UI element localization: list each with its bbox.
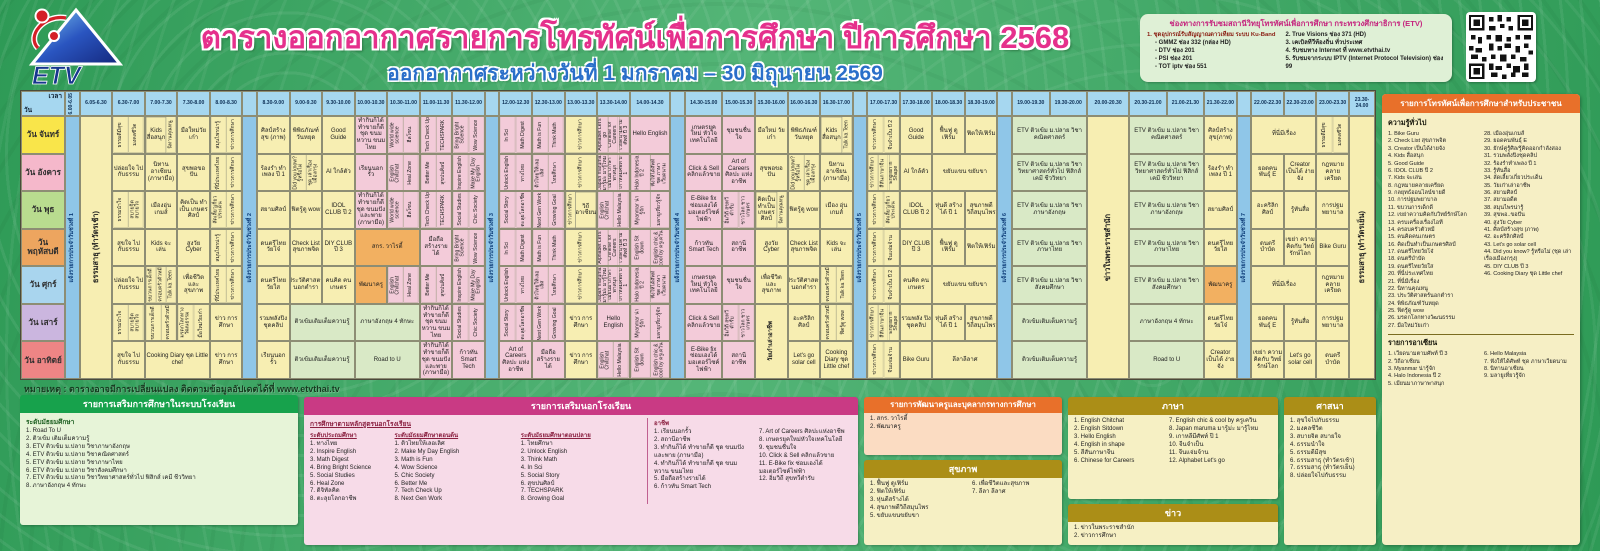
schedule-cell: ฟิตรู้ดู wow: [788, 191, 821, 229]
schedule-cell: หุ่นดี สร้างได้ ปี 1: [932, 191, 965, 229]
list-item: 2. มงคลชีวิต: [1290, 426, 1370, 434]
schedule-subcell: มือใหม่วัยเก๋า: [194, 305, 209, 341]
schedule-subcell: TECHSPARK: [436, 192, 451, 228]
schedule-subcell: สุขปนศิลป์: [436, 267, 451, 303]
schedule-cell: ฟิตให้เฟิร์ม: [965, 116, 998, 154]
schedule-cell: สูงวัย Cyber: [177, 229, 210, 267]
schedule-subcell: ทางไทย: [516, 155, 531, 191]
schedule-cell: Creator เป็นได้ ง่ายจัง: [1204, 341, 1237, 379]
schedule-subcell: Better Me: [421, 155, 436, 191]
time-header-cell: 14.00-14.30: [630, 91, 671, 116]
schedule-cell: มือถือ สร้างรายได้: [532, 341, 565, 379]
schedule-subcell: Better Me: [421, 267, 436, 303]
panel-public: รายการโทรทัศน์เพื่อการศึกษาสำหรับประชาชน…: [1382, 94, 1580, 545]
list-item: 3. Math Digest: [310, 457, 388, 465]
schedule-subcell: Growing Goal: [548, 305, 563, 341]
schedule-cell: เพื่อชีวิต และ สุขภาพ: [755, 266, 788, 304]
schedule-cell: Halo Indonesia ปี 2ฟังให้ได้ศัพท์ ชุด ภา…: [630, 154, 671, 192]
list-item: 1. สกร. วาไรตี้: [870, 416, 1056, 424]
schedule-cell: ประวัติศาสตร์ นอกตำรา: [290, 266, 323, 304]
schedule-subcell: ข่าวการศึกษา: [868, 230, 883, 266]
panel-public-title: รายการโทรทัศน์เพื่อการศึกษาสำหรับประชาชน: [1382, 94, 1580, 113]
schedule-cell: ฟื้นฟู ดูเฟิร์ม: [932, 229, 965, 267]
list-item: 8. ปล่อยใจไปกับธรรม: [1290, 473, 1370, 481]
schedule-subcell: สีสันภาษาจีน: [878, 155, 888, 191]
list-item: 4. รับชมทาง Internet ที่ www.etvthai.tv: [1285, 48, 1445, 56]
teacher-list: 1. สกร. วาไรตี้2. พัฒนาครู: [864, 413, 1062, 455]
schedule-subcell: ฮีลโซน: [403, 192, 418, 228]
daily-announce-band: แจ้งรายการประจำวันช่วงที่ 4: [670, 116, 685, 379]
schedule-cell: ข่าวการศึกษาสีสันภาษาจีนEnglish in Shape: [867, 304, 900, 342]
career-list-2: 7. Art of Careers ศิลปะแห่งอาชีพ8. เกษตร…: [759, 429, 852, 492]
schedule-cell: เมืองอุ่นเกมส์: [145, 191, 178, 229]
schedule-subcell: Chic Society: [469, 305, 484, 341]
schedule-cell: ธรรมนำใจสบายจิต สบายใจ: [112, 304, 145, 342]
schedule-cell: พิพิธภัณฑ์ วันหยุด: [788, 116, 821, 154]
schedule-subcell: Unlock English: [500, 267, 515, 303]
schedule-cell: รู้ทันสื่อ: [1284, 191, 1317, 229]
schedule-cell: สุขภาพดี วิถีสมุนไพร: [965, 304, 998, 342]
career-list-1: 1. เรียนนอกรั้ว2. สถานีอาชีพ3. ทำกินก็ได…: [654, 429, 752, 492]
schedule-subcell: ชุด เล่าเรื่องเมืองกรุง: [804, 155, 819, 191]
schedule-subcell: ฟังให้ได้ศัพท์ ชุด ภาษาเวียดนาม: [650, 155, 669, 191]
schedule-cell: คิดเป็น ทำเป็น เกษตร ศิลป์: [177, 191, 210, 229]
list-item: 8. ภาษาอังกฤษ 4 ทักษะ: [26, 483, 292, 491]
schedule-subcell: ข่าวการศึกษา: [226, 192, 241, 228]
schedule-subcell: Halo Indonesia ปี 2: [631, 267, 650, 303]
panel-health: สุขภาพ 1. ฟื้นฟู ดูเฟิร์ม2. ฟิตให้เฟิร์ม…: [864, 460, 1062, 545]
list-item: 8. Next Gen Work: [395, 496, 514, 504]
time-header-cell: 18.00-18.30: [932, 91, 965, 116]
schedule-cell: ยอดคน พันธุ์ E: [1251, 304, 1284, 342]
schedule-cell: Inspire EnglishMake My Day English: [452, 154, 485, 192]
lower-list: 1. ติวไทยให้เลอเลิศ2. Make My Day Englis…: [395, 441, 514, 504]
list-item: 1. สุขใจไปกับธรรม: [1290, 418, 1370, 426]
time-header-cell: [485, 91, 500, 116]
schedule-cell: ภาษาอังกฤษ 4 ทักษะ: [355, 304, 420, 342]
schedule-cell: ข่าวการศึกษาลัดเลี้ยวเกี่ยวประเด็น: [867, 191, 900, 229]
schedule-cell: ศิลป์สร้าง สุข(ภาพ): [1204, 116, 1237, 154]
list-item: 31. รวมพลังปิงชุดคลิป: [1484, 153, 1574, 160]
schedule-cell: Inspire EnglishMake My Day English: [452, 266, 485, 304]
schedule-subcell: ตะลุยโลกอาชีพ: [516, 192, 531, 228]
schedule-subcell: Inspire English: [453, 155, 468, 191]
list-item: 6. IDOL CLUB ปี 2: [1388, 168, 1480, 175]
schedule-cell: สถานีอาชีพ: [722, 229, 755, 267]
schedule-subcell: วิถี อาเซียน: [575, 192, 596, 228]
schedule-subcell: เวียดนามตามศัพท์ ปี 3: [619, 117, 629, 153]
list-item: 2. วิถีอาเซียน: [1388, 359, 1480, 366]
schedule-cell: Halo Indonesia ปี 2ฟังให้ได้ศัพท์ ชุด ภา…: [630, 266, 671, 304]
list-item: 13. ครบเครื่องเรื่องไอที: [1388, 220, 1480, 227]
schedule-subcell: ติวไทยให้เลอเลิศ: [533, 155, 548, 191]
schedule-subcell: มลายูเที่ยวรู้จัก: [650, 192, 669, 228]
list-item: 9. ชุมชนชื่นใจ: [759, 445, 852, 453]
time-header-cell: 7.00-7.30: [145, 91, 178, 116]
schedule-cell: ดนตรีไทย วัยโจ๋: [257, 229, 290, 267]
schedule-cell: Bring Bright ScienceWow Science: [452, 116, 485, 154]
schedule-cell: ทำกินก็ได้ทำขายก็ดี ชุด ขนมหวาน ขนมไทย: [355, 116, 388, 154]
schedule-subcell: Talk ka Teen: [166, 267, 176, 303]
schedule-subcell: ที่นี่ประเทศไทย: [211, 267, 226, 303]
schedule-cell: การปฐม พยาบาล: [1316, 304, 1349, 342]
list-item: 11. E-Bike fix ซ่อมเองได้ มอเตอร์ไซค์ไฟฟ…: [759, 461, 852, 477]
schedule-cell: English ChitchatHello Malaysia: [597, 191, 630, 229]
schedule-subcell: ข่าวการศึกษา: [868, 342, 883, 378]
time-header-cell: 6.05-6.30: [80, 91, 113, 116]
general-heading: ความรู้ทั่วไป: [1388, 118, 1574, 129]
schedule-subcell: Did you know? รู้หรือไม่: [789, 155, 804, 191]
list-item: 8. เกษตรยุคใหม่หัวใจเทคโนโลยี: [759, 437, 852, 445]
schedule-subcell: ธรรมนำใจ: [113, 192, 128, 228]
schedule-cell: E-Bike fix ซ่อมเองได้ มอเตอร์ไซค์ ไฟฟ้า: [685, 191, 722, 229]
schedule-cell: Math is FunThink Math: [532, 229, 565, 267]
schedule-subcell: English chic & cool by ครูเควิน: [650, 342, 669, 378]
schedule-subcell: Social Studies: [453, 305, 468, 341]
list-item: 7. ฟังให้ได้ศัพท์ ชุด ภาษาเวียดนาม: [1484, 359, 1574, 366]
schedule-cell: เขย่า ความคิดกับ วิทย์รักษ์โลก: [1251, 341, 1284, 379]
upper-heading: ระดับมัธยมศึกษาตอนปลาย: [521, 430, 640, 440]
schedule-cell: Hello English: [630, 116, 671, 154]
schedule-cell: วัยเก๋าเล่าอาชีพ: [755, 304, 788, 379]
list-item: 5. Social Story: [521, 473, 640, 481]
list-item: 12. Alphabet Let's go: [1169, 458, 1272, 466]
viewing-channels-box: ช่องทางการรับชมสถานีวิทยุโทรทัศน์เพื่อกา…: [1140, 14, 1452, 82]
schedule-cell: สกร. วาไรตี้: [355, 229, 420, 267]
schedule-cell: ชุมชนชื่นใจ: [722, 116, 755, 154]
svg-text:ETV: ETV: [32, 62, 83, 86]
list-item: - TOT iptv ช่อง 551: [1155, 64, 1279, 72]
list-item: 18. ดนตรีบำบัด: [1388, 256, 1480, 263]
schedule-cell: ธรรมสาธุ (ทำวัตรเย็น): [1349, 116, 1375, 379]
daily-announce-band: แจ้งรายการประจำวันช่วงที่ 6: [997, 116, 1012, 379]
list-item: 2. สถานีอาชีพ: [654, 437, 752, 445]
time-header-cell: 19.30-20.00: [1050, 91, 1087, 116]
schedule-cell: ยอดคน พันธุ์ E: [1251, 154, 1284, 192]
schedule-cell: In SciMath Digest: [499, 229, 532, 267]
general-list-1: 1. Bike Guru2. Check List สุขภาพจิต3. Cr…: [1388, 131, 1480, 330]
schedule-subcell: ข่าวการศึกษา: [226, 267, 241, 303]
schedule-subcell: สีสันภาษาจีน: [878, 305, 888, 341]
schedule-cell: อะคริลิก ศิลป์: [1251, 191, 1284, 229]
schedule-cell: World wide scienceฮีลโซน: [387, 116, 420, 154]
schedule-subcell: จีนแจ่มจ้าน: [884, 230, 899, 266]
upper-list: 1. ไทยศึกษา2. Unlock English3. Think Mat…: [521, 441, 640, 504]
list-item: 42. อะคริลิกศิลป์: [1484, 234, 1574, 241]
schedule-cell: มือใหม่ วัยเก๋า: [755, 116, 788, 154]
level-heading: ระดับมัธยมศึกษา: [26, 416, 292, 427]
schedule-cell: Social Storyตะลุยโลกอาชีพ: [499, 304, 532, 342]
qr-code: [1466, 12, 1536, 82]
panel-in-school-title: รายการเสริมการศึกษาในระบบโรงเรียน: [20, 395, 298, 413]
schedule-cell: ETV ติวเข้ม ม.ปลาย วิชาสังคมศึกษา: [1129, 266, 1204, 304]
schedule-cell: หุ่นดี สร้างได้ ปี 1: [932, 304, 965, 342]
schedule-subcell: English Chitchat: [388, 155, 403, 191]
list-item: 6. Chinese for Careers: [1074, 458, 1162, 466]
schedule-cell: Alphabet Let's goChinese for Careersเวีย…: [597, 229, 630, 267]
schedule-cell: Unlock Englishทางไทย: [499, 154, 532, 192]
schedule-subcell: เกาหลีมีศัพท์ ปี 1: [619, 267, 629, 303]
panel-religion-title: ศาสนา: [1284, 397, 1376, 415]
list-item: 15. คนคิดคนเกษตร: [1388, 234, 1480, 241]
schedule-cell: รวมพลังปิง ชุดคลิป: [257, 304, 290, 342]
schedule-cell: ที่นี่มีเรื่อง: [1251, 266, 1316, 304]
schedule-cell: Let's go solar cell: [788, 341, 821, 379]
list-item: 2. Inspire English: [310, 449, 388, 457]
schedule-subcell: เมียนมาภาษาพาสนุก: [608, 267, 618, 303]
schedule-subcell: Kids สื่อสนุก: [146, 117, 167, 153]
schedule-cell: ดนตรีไทย วัยใส: [1204, 229, 1237, 267]
schedule-cell: ข่าวการศึกษาจีนจำเป็น ปี 2: [867, 266, 900, 304]
schedule-cell: ทำกินก็ได้ ทำขายก็ดี ชุด ขนมปังและพาย (ภ…: [420, 341, 453, 379]
list-item: - GMMZ ช่อง 332 (กล่อง HD): [1155, 40, 1279, 48]
schedule-subcell: ข่าวการศึกษา: [566, 155, 597, 191]
list-item: 5. Social Studies: [310, 473, 388, 481]
schedule-cell: ดนตรีไทย วัยโจ๋: [1204, 304, 1237, 342]
schedule-cell: English ChitchatHello Malaysia: [597, 341, 630, 379]
list-item: 6. สุขปนศิลป์: [521, 481, 640, 489]
list-item: 1. Road To U: [26, 428, 292, 436]
schedule-cell: สมุนไพรน่ารู้ข่าวการศึกษา: [210, 116, 243, 154]
schedule-subcell: Next Gen Work: [533, 305, 548, 341]
schedule-cell: AI ใกล้ตัว: [322, 154, 355, 192]
schedule-cell: ศิลป์สร้างสุข (ภาพ): [257, 116, 290, 154]
schedule-cell: Myanmar น่ารู้จักมลายูเที่ยวรู้จัก: [630, 191, 671, 229]
schedule-subcell: ข่าวการศึกษา: [868, 267, 883, 303]
list-item: 2. English Sitdown: [1074, 426, 1162, 434]
schedule-cell: สุขพอขอปัน: [177, 154, 210, 192]
schedule-cell: ลัดเลี้ยวเกี่ยวประเด็นข่าวการศึกษา: [210, 191, 243, 229]
schedule-subcell: สมุนไพรน่ารู้: [211, 117, 226, 153]
day-label: วัน อาทิตย์: [21, 341, 65, 379]
list-item: 6. ก้าวทัน Smart Tech: [654, 484, 752, 492]
list-item: 5. Chic Society: [395, 473, 514, 481]
schedule-subcell: Heal Zone: [403, 267, 418, 303]
list-item: 8. Japan maruma มารู้ม่ะ มารู้ไหม: [1169, 426, 1272, 434]
daily-announce-band: แจ้งรายการประจำวันช่วงที่ 7: [1237, 116, 1252, 379]
list-item: 5. เมียนมาภาษาพาสนุก: [1388, 381, 1480, 388]
schedule-subcell: ข่าวการศึกษา: [566, 230, 597, 266]
schedule-cell: ติวเข้มเติมเต็มความรู้: [290, 304, 355, 342]
schedule-cell: ฟื้นฟู ดูเฟิร์ม: [932, 116, 965, 154]
schedule-cell: อิ่มวิถี สุขทวีตำรับชาวโลก ชาวเกษตร: [722, 304, 755, 342]
time-header-cell: [997, 91, 1012, 116]
schedule-grid: เวลาวัน6.00-6.05แจ้งรายการประจำวันช่วงที…: [20, 90, 1376, 380]
schedule-subcell: ข่าวการศึกษา: [226, 155, 241, 191]
schedule-cell: English ChitchatHeal Zone: [387, 154, 420, 192]
schedule-cell: ติวเข้มเติมเต็มความรู้: [1012, 304, 1087, 342]
schedule-subcell: ธรรมดีมีสุข: [1317, 117, 1332, 153]
panel-teacher: รายการพัฒนาครูและบุคลากรทางการศึกษา 1. ส…: [864, 397, 1062, 455]
schedule-cell: ขยับแขน ขยับขา: [932, 266, 997, 304]
schedule-subcell: ที่นี่ประเทศไทย: [211, 155, 226, 191]
schedule-cell: มรดกโลกทางวัฒนธรรมมือใหม่วัยเก๋า: [177, 304, 210, 342]
schedule-cell: สุขใจ ไปกับธรรม: [112, 341, 145, 379]
daily-announce-band: แจ้งรายการประจำวันช่วงที่ 3: [485, 116, 500, 379]
schedule-cell: Good Guide: [900, 116, 933, 154]
list-item: 37. สยามอดีต: [1484, 197, 1574, 204]
schedule-cell: DIY CLUB ปี 3: [900, 229, 933, 267]
list-item: 11. จีนแจ่มจ้าน: [1169, 450, 1272, 458]
schedule-subcell: ขบวนการเด็กดี: [146, 305, 161, 341]
time-header-cell: 23.30-24.00: [1349, 91, 1375, 116]
panel-language-title: ภาษา: [1068, 397, 1278, 415]
schedule-cell: ข่าวการศึกษา: [565, 266, 598, 304]
schedule-subcell: Japan maruma มารู้ม่ะ มารู้ไหม: [598, 267, 608, 303]
schedule-subcell: Japan maruma มารู้ม่ะ มารู้ไหม: [598, 155, 608, 191]
list-item: 2. True Visions ช่อง 371 (HD): [1285, 32, 1445, 40]
schedule-subcell: Did you know? รู้หรือไม่: [291, 155, 306, 191]
time-header-cell: 20.00-20.30: [1087, 91, 1129, 116]
schedule-subcell: สุขปนศิลป์: [436, 155, 451, 191]
schedule-subcell: English chic & cool by ครูเควิน: [650, 230, 669, 266]
list-item: 3. Hello English: [1074, 434, 1162, 442]
time-header-cell: [242, 91, 257, 116]
list-item: 7. Tech Check Up: [395, 488, 514, 496]
schedule-cell: มือใหม่วัยเก๋า: [177, 116, 210, 154]
schedule-subcell: Make My Day English: [469, 267, 484, 303]
schedule-cell: E-Bike fix ซ่อมเองได้ มอเตอร์ไซค์ ไฟฟ้า: [685, 341, 722, 379]
schedule-cell: คนคิด คนเกษตร: [900, 266, 933, 304]
schedule-subcell: ครอบครัวตัวหมี: [156, 267, 166, 303]
time-header-cell: [1237, 91, 1252, 116]
time-header-cell: 13.00-13.30: [565, 91, 598, 116]
page-title: ตารางออกอากาศรายการโทรทัศน์เพื่อการศึกษา…: [140, 12, 1130, 62]
list-item: 10. Click & Sell คลิกแล้วขาย: [759, 453, 852, 461]
schedule-cell: สถานีอาชีพ: [722, 341, 755, 379]
schedule-cell: อะคริลิก ศิลป์: [788, 304, 821, 342]
schedule-cell: ข่าวการศึกษา: [565, 229, 598, 267]
viewing-channels-col2: 2. True Visions ช่อง 371 (HD)3. เคเบิลที…: [1285, 32, 1445, 72]
list-item: 4. Halo Indonesia ปี 2: [1388, 373, 1480, 380]
schedule-subcell: เมียนมาภาษาพาสนุก: [608, 155, 618, 191]
schedule-subcell: Think Math: [548, 117, 563, 153]
schedule-subcell: สบายจิต สบายใจ: [128, 192, 143, 228]
list-item: 5. สีสันภาษาจีน: [1074, 450, 1162, 458]
schedule-cell: ชุมชนชื่นใจ: [722, 266, 755, 304]
schedule-subcell: มงคลชีวิต: [1333, 117, 1348, 153]
schedule-subcell: Math is Fun: [533, 230, 548, 266]
list-item: 3. Math is Fun: [395, 457, 514, 465]
schedule-cell: English Sit downEnglish chic & cool by ค…: [630, 229, 671, 267]
schedule-cell: Cooking Diary ชุด Little chef: [145, 341, 210, 379]
schedule-cell: Check List สุขภาพจิต: [788, 229, 821, 267]
schedule-subcell: ครอบครัวตัวหมี: [821, 267, 836, 303]
schedule-cell: Tech Check UpTECHSPARK: [420, 191, 453, 229]
day-label: วัน พุธ: [21, 191, 65, 229]
time-header-cell: 18.30-19.00: [965, 91, 998, 116]
schedule-cell: นิทาน อาเซียน (ภาษามือ): [820, 154, 853, 192]
schedule-cell: Click & Sell คลิกแล้วขาย: [685, 304, 722, 342]
list-item: 43. Let's go solar cell: [1484, 242, 1574, 249]
schedule-cell: Next Gen WorkGrowing Goal: [532, 191, 565, 229]
list-item: 6. Better Me: [395, 481, 514, 489]
schedule-cell: ข่าว การศึกษา: [210, 304, 243, 342]
schedule-subcell: ไทยศึกษา: [548, 155, 563, 191]
schedule-subcell: มงคลชีวิต: [128, 117, 143, 153]
list-item: 5. ขยับแขนขยับขา: [870, 513, 965, 521]
schedule-cell: ธรรมนำใจสบายจิต สบายใจ: [112, 191, 145, 229]
panel-news-title: ข่าว: [1068, 504, 1278, 522]
time-header-cell: 21.00-21.30: [1167, 91, 1204, 116]
schedule-subcell: จีนจำเป็น ปี 2: [884, 117, 899, 153]
schedule-subcell: ตะลุยโลกอาชีพ: [516, 305, 531, 341]
panel-teacher-title: รายการพัฒนาครูและบุคลากรทางการศึกษา: [864, 397, 1062, 413]
schedule-corner: เวลาวัน: [21, 91, 65, 116]
schedule-cell: Social StudiesChic Society: [452, 304, 485, 342]
schedule-subcell: นิทานคุณหนู: [166, 117, 176, 153]
schedule-cell: ที่นี่มีเรื่อง: [1251, 116, 1316, 154]
list-item: 4. Kids สื่อสนุก: [1388, 153, 1480, 160]
schedule-cell: ดนตรี บำบัด: [1316, 341, 1349, 379]
schedule-subcell: English Sit down: [631, 342, 650, 378]
schedule-cell: ETV ติวเข้ม ม.ปลาย วิชาภาษาอังกฤษ: [1012, 191, 1087, 229]
panel-religion: ศาสนา 1. สุขใจไปกับธรรม2. มงคลชีวิต3. สบ…: [1284, 397, 1376, 545]
schedule-cell: ร้องรำ ทำเพลง ปี 1: [1204, 154, 1237, 192]
language-list-1: 1. English Chitchat2. English Sitdown3. …: [1074, 418, 1162, 465]
list-item: 12. อิ่มวิถี สุขทวีตำรับ: [759, 476, 852, 484]
primary-list: 1. ทางไทย2. Inspire English3. Math Diges…: [310, 441, 388, 504]
schedule-cell: Math is FunThink Math: [532, 116, 565, 154]
schedule-cell: ทำกินก็ได้ ทำขายก็ดี ชุด ขนมหวาน ขนมไทย: [420, 304, 453, 342]
schedule-cell: ภาษาอังกฤษ 4 ทักษะ: [1129, 304, 1204, 342]
list-item: 9. เกาหลีมีศัพท์ ปี 1: [1169, 434, 1272, 442]
schedule-subcell: Make My Day English: [469, 155, 484, 191]
list-item: 1. ไทยศึกษา: [521, 441, 640, 449]
list-item: 29. ยอดคนพันธุ์ E: [1484, 138, 1574, 145]
daily-announce-band: แจ้งรายการประจำวันช่วงที่ 2: [242, 116, 257, 379]
schedule-cell: ขยับแขน ขยับขา: [932, 154, 997, 192]
news-list: 1. ข่าวในพระราชสำนัก2. ข่าวการศึกษา: [1068, 522, 1278, 545]
schedule-subcell: English Chitchat: [598, 192, 613, 228]
schedule-cell: เรียนนอกรั้ว: [257, 341, 290, 379]
list-item: 3. เคเบิลทีวีท้องถิ่น ทั่วประเทศ: [1285, 40, 1445, 48]
schedule-subcell: Myanmar น่ารู้จัก: [631, 192, 650, 228]
schedule-subcell: Tech Check Up: [421, 117, 436, 153]
schedule-cell: ฟิตให้เฟิร์ม: [965, 229, 998, 267]
schedule-subcell: ชาวโลก ชาวเกษตร: [739, 192, 754, 228]
schedule-cell: ทำกินก็ได้ทำขายก็ดี ชุด ขนมปังและพาย (ภา…: [355, 191, 388, 229]
list-item: 1. เรียนนอกรั้ว: [654, 429, 752, 437]
schedule-cell: พัฒนาครู: [1204, 266, 1237, 304]
schedule-cell: English Sit downEnglish chic & cool by ค…: [630, 341, 671, 379]
schedule-cell: DIY CLUB ปี 3: [322, 229, 355, 267]
list-item: 8. ตะลุยโลกอาชีพ: [310, 496, 388, 504]
schedule-cell: Bring Bright ScienceWow Science: [452, 229, 485, 267]
schedule-subcell: ขบวนการเด็กดี: [146, 267, 156, 303]
time-header-cell: 22.00-22.30: [1251, 91, 1284, 116]
time-header-cell: 10.00-10.30: [355, 91, 388, 116]
schedule-subcell: เกาหลีมีศัพท์ ปี 1: [619, 155, 629, 191]
list-item: 6. Hello Malaysia: [1484, 351, 1574, 358]
schedule-subcell: ข่าวการศึกษา: [566, 267, 597, 303]
schedule-cell: Japan maruma มารู้ม่ะ มารู้ไหมเมียนมาภาษ…: [597, 154, 630, 192]
schedule-cell: เกษตรยุคใหม่ หัวใจ เทคโนโลยี: [685, 116, 722, 154]
schedule-subcell: ติวไทยให้เลอเลิศ: [533, 267, 548, 303]
day-label: วัน ศุกร์: [21, 266, 65, 304]
asean-list-2: 6. Hello Malaysia7. ฟังให้ได้ศัพท์ ชุด ภ…: [1484, 351, 1574, 388]
asean-heading: รายการ​อาเซียน: [1388, 338, 1574, 349]
health-list-2: 6. เพื่อชีวิตและสุขภาพ7. ลีลา ลีลาศ: [972, 481, 1056, 521]
career-heading: อาชีพ: [654, 418, 852, 428]
schedule-cell: Alphabet Let's goChinese for Careersเวีย…: [597, 116, 630, 154]
schedule-cell: ขบวนการเด็กดีครอบครัวตัวหมีTalk ka Teen: [145, 266, 178, 304]
schedule-cell: คนคิด คนเกษตร: [322, 266, 355, 304]
time-header-cell: 14.30-15.00: [685, 91, 722, 116]
time-header-cell: [853, 91, 868, 116]
list-item: 6. เพื่อชีวิตและสุขภาพ: [972, 481, 1056, 489]
time-header-cell: 6.30-7.00: [112, 91, 145, 116]
